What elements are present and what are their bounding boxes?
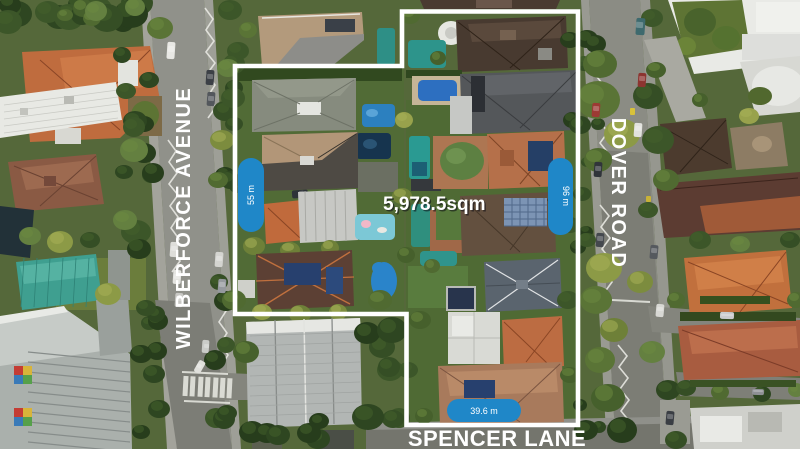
svg-text:39.6 m: 39.6 m xyxy=(470,406,498,416)
svg-text:DOVER ROAD: DOVER ROAD xyxy=(607,118,629,269)
svg-text:5,978.5sqm: 5,978.5sqm xyxy=(383,194,485,215)
svg-text:WILBERFORCE AVENUE: WILBERFORCE AVENUE xyxy=(173,87,195,350)
svg-text:55 m: 55 m xyxy=(246,185,256,205)
svg-text:96 m: 96 m xyxy=(561,186,571,206)
svg-text:SPENCER LANE: SPENCER LANE xyxy=(408,426,586,449)
